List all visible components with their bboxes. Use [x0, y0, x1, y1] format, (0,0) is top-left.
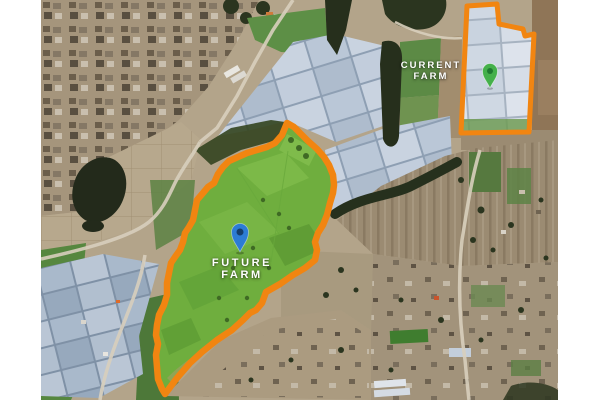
- map-pin-icon: [487, 68, 493, 74]
- map-figure: CURRENT FARM FUTURE FARM: [0, 0, 600, 400]
- satellite-imagery: [41, 0, 558, 400]
- map-pin-icon: [237, 229, 244, 236]
- satellite-map[interactable]: CURRENT FARM FUTURE FARM: [41, 0, 558, 400]
